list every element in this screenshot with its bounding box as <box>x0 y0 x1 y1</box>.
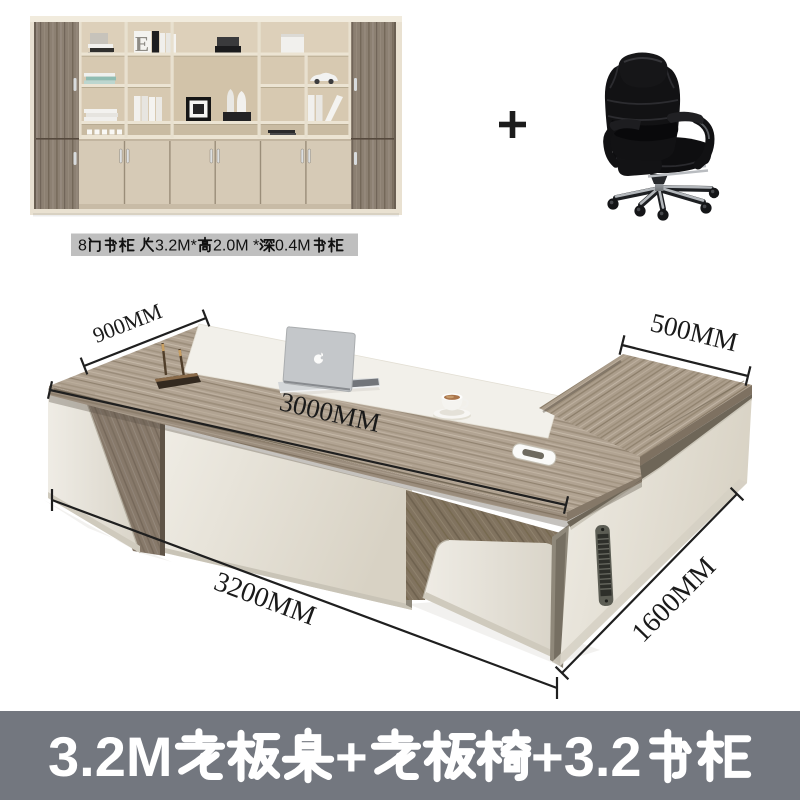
svg-text:8: 8 <box>78 238 87 255</box>
svg-text:900MM: 900MM <box>89 298 165 348</box>
svg-text:E: E <box>135 32 149 56</box>
svg-text:+: + <box>335 725 368 788</box>
svg-text:500MM: 500MM <box>648 307 741 357</box>
svg-text:3.2M: 3.2M <box>48 725 173 788</box>
svg-text:0.4M: 0.4M <box>275 238 311 255</box>
svg-text:2.0M *: 2.0M * <box>213 238 259 255</box>
svg-text:+3.2: +3.2 <box>531 725 642 788</box>
svg-text:3.2M*: 3.2M* <box>155 238 197 255</box>
